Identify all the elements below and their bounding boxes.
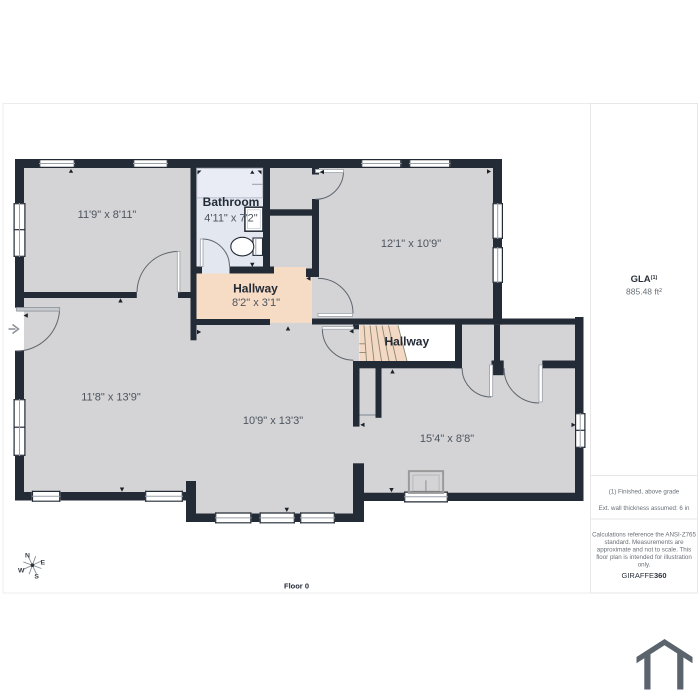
- svg-text:Bathroom: Bathroom: [203, 195, 260, 209]
- svg-text:10'9" x 13'3": 10'9" x 13'3": [243, 415, 303, 427]
- svg-text:S: S: [34, 573, 39, 580]
- svg-text:Ext. wall thickness assumed: 6: Ext. wall thickness assumed: 6 in: [599, 505, 690, 512]
- svg-text:12'1" x 10'9": 12'1" x 10'9": [381, 238, 441, 250]
- svg-text:GIRAFFE360: GIRAFFE360: [621, 571, 666, 580]
- svg-text:approximate and not to scale.: approximate and not to scale. This: [597, 547, 691, 554]
- svg-text:Calculations reference the ANS: Calculations reference the ANSI-Z765: [592, 532, 696, 539]
- svg-text:8'2" x 3'1": 8'2" x 3'1": [232, 297, 280, 309]
- svg-text:11'8" x 13'9": 11'8" x 13'9": [81, 392, 141, 404]
- svg-text:W: W: [18, 567, 25, 574]
- svg-text:15'4" x 8'8": 15'4" x 8'8": [420, 433, 474, 445]
- svg-text:Hallway: Hallway: [384, 335, 429, 349]
- svg-text:standard. Measurements are: standard. Measurements are: [604, 539, 684, 546]
- svg-text:(1) Finished, above grade: (1) Finished, above grade: [609, 489, 680, 496]
- svg-text:4'11" x 7'2": 4'11" x 7'2": [204, 213, 257, 225]
- svg-text:floor plan is intended for ill: floor plan is intended for illustration: [596, 554, 692, 561]
- svg-text:N: N: [25, 553, 30, 560]
- svg-text:E: E: [41, 560, 46, 567]
- svg-text:Floor 0: Floor 0: [284, 582, 309, 591]
- svg-text:Hallway: Hallway: [233, 282, 278, 296]
- svg-text:only.: only.: [638, 562, 651, 569]
- svg-text:885.48 ft²: 885.48 ft²: [626, 287, 662, 297]
- svg-text:11'9" x 8'11": 11'9" x 8'11": [78, 209, 137, 221]
